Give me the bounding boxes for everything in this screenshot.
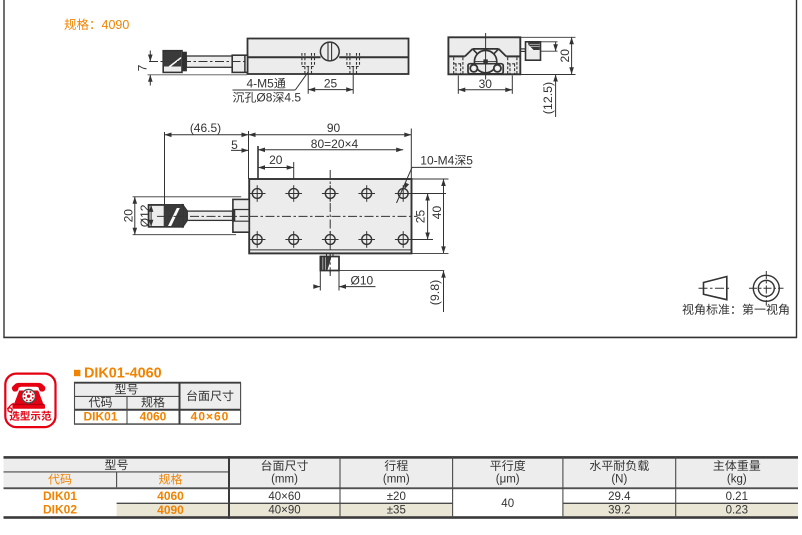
svg-text:0.23: 0.23 [726, 504, 748, 516]
svg-text:4060: 4060 [157, 489, 184, 503]
svg-text:(9.8): (9.8) [428, 280, 442, 305]
svg-text:40×90: 40×90 [268, 504, 300, 516]
svg-text:40: 40 [430, 206, 444, 220]
svg-text:(mm): (mm) [271, 474, 298, 486]
svg-text:4-M5: 4-M5 [247, 77, 275, 91]
svg-text:(mm): (mm) [383, 474, 410, 486]
svg-text:20: 20 [122, 209, 136, 223]
svg-text:25: 25 [324, 76, 338, 90]
svg-text:40×60: 40×60 [268, 491, 300, 503]
svg-text:±20: ±20 [387, 491, 406, 503]
svg-text:5: 5 [466, 153, 473, 167]
svg-text:DIK02: DIK02 [43, 503, 77, 517]
svg-text:DIK01-4060: DIK01-4060 [84, 366, 162, 382]
svg-text:80=20×4: 80=20×4 [311, 137, 359, 151]
svg-text:4.5: 4.5 [284, 91, 301, 105]
svg-text:29.4: 29.4 [608, 491, 631, 503]
svg-text:Ø12: Ø12 [138, 204, 152, 227]
svg-text:(46.5): (46.5) [190, 121, 221, 135]
svg-text:4090: 4090 [102, 18, 130, 32]
svg-text:5: 5 [231, 138, 238, 152]
svg-text:4060: 4060 [140, 410, 167, 424]
svg-text:25: 25 [413, 210, 427, 224]
svg-text:20: 20 [558, 49, 572, 63]
svg-text:(12.5): (12.5) [541, 82, 555, 114]
svg-text:(kg): (kg) [727, 474, 747, 486]
svg-text:20: 20 [269, 153, 283, 167]
svg-text:(μm): (μm) [496, 474, 520, 486]
svg-text:DIK01: DIK01 [83, 410, 117, 424]
svg-text:40×60: 40×60 [191, 410, 230, 424]
svg-text:4090: 4090 [157, 503, 184, 517]
svg-text:40: 40 [501, 498, 514, 510]
svg-text:7: 7 [135, 64, 149, 71]
svg-text:DIK01: DIK01 [43, 489, 77, 503]
svg-text:±35: ±35 [387, 504, 406, 516]
svg-text:30: 30 [479, 77, 493, 91]
svg-text:Ø10: Ø10 [351, 274, 374, 288]
svg-text:0.21: 0.21 [726, 491, 748, 503]
svg-text:90: 90 [327, 121, 341, 135]
svg-text:(N): (N) [611, 474, 627, 486]
svg-text:Ø8: Ø8 [256, 91, 272, 105]
svg-text:39.2: 39.2 [608, 504, 630, 516]
svg-text:10-M4: 10-M4 [420, 153, 454, 167]
